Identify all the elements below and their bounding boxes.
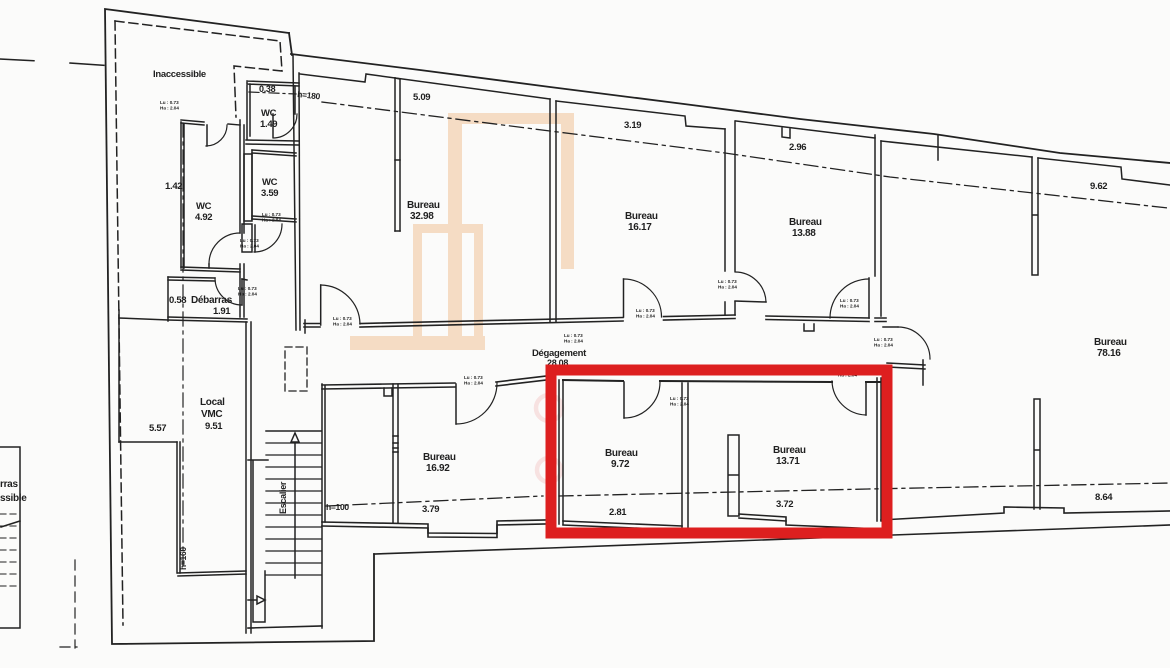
svg-text:WC: WC: [196, 201, 212, 212]
svg-text:1.49: 1.49: [260, 119, 277, 130]
svg-text:WC: WC: [261, 108, 277, 119]
svg-text:16.17: 16.17: [628, 222, 652, 233]
svg-text:rras: rras: [0, 479, 18, 490]
svg-text:WC: WC: [262, 177, 278, 188]
svg-text:5.09: 5.09: [413, 92, 430, 103]
svg-text:9.51: 9.51: [205, 421, 223, 432]
svg-text:78.16: 78.16: [1097, 348, 1121, 359]
svg-text:8.64: 8.64: [1095, 492, 1113, 503]
svg-text:16.92: 16.92: [426, 463, 450, 474]
svg-text:Bureau: Bureau: [407, 200, 440, 211]
svg-text:h=100: h=100: [326, 502, 349, 512]
svg-text:2.96: 2.96: [789, 142, 806, 153]
svg-text:3.72: 3.72: [776, 499, 793, 510]
svg-text:5.57: 5.57: [149, 423, 166, 434]
svg-text:Escalier: Escalier: [278, 481, 288, 514]
svg-text:3.79: 3.79: [422, 504, 439, 515]
svg-text:9.72: 9.72: [611, 459, 630, 470]
svg-text:2.81: 2.81: [609, 507, 627, 518]
svg-text:3.59: 3.59: [261, 188, 278, 199]
svg-text:Bureau: Bureau: [605, 448, 638, 459]
svg-text:Débarras: Débarras: [191, 295, 233, 306]
svg-text:h=160: h=160: [178, 547, 188, 570]
svg-text:9.62: 9.62: [1090, 181, 1107, 192]
svg-text:0.38: 0.38: [259, 84, 276, 94]
svg-text:Local: Local: [200, 397, 225, 408]
svg-text:13.88: 13.88: [792, 228, 816, 239]
svg-text:4.92: 4.92: [195, 212, 212, 223]
svg-text:Bureau: Bureau: [625, 211, 658, 222]
svg-text:Inaccessible: Inaccessible: [153, 69, 206, 80]
svg-text:Bureau: Bureau: [423, 452, 456, 463]
svg-text:3.19: 3.19: [624, 120, 641, 131]
svg-text:1.42: 1.42: [165, 181, 182, 192]
svg-text:Bureau: Bureau: [789, 217, 822, 228]
svg-text:0.58: 0.58: [169, 295, 186, 306]
svg-text:32.98: 32.98: [410, 211, 434, 222]
svg-text:Bureau: Bureau: [1094, 337, 1127, 348]
svg-text:ssible: ssible: [0, 493, 27, 504]
svg-text:13.71: 13.71: [776, 456, 800, 467]
svg-text:1.91: 1.91: [213, 306, 231, 317]
svg-text:Bureau: Bureau: [773, 445, 806, 456]
svg-text:VMC: VMC: [201, 409, 222, 420]
svg-text:h=180: h=180: [297, 89, 321, 101]
